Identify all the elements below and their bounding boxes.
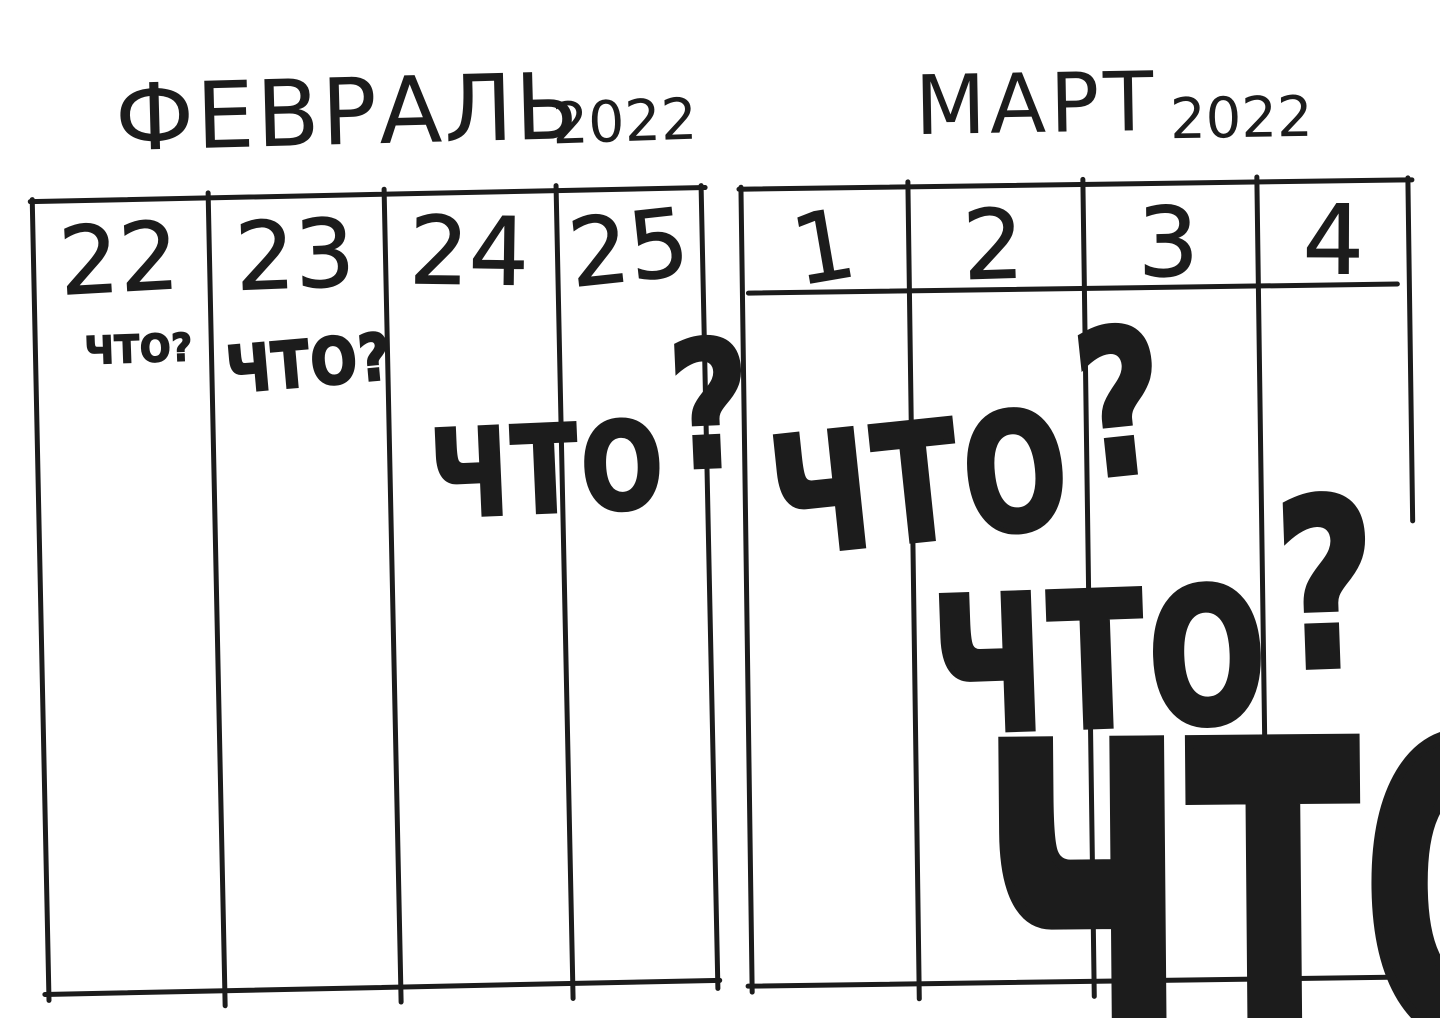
- question-mark: ?: [665, 318, 758, 497]
- what-text: ЧТО?: [84, 325, 194, 373]
- what-text: ЧТО: [982, 660, 1440, 1018]
- day-header-mar-3: 3: [1137, 194, 1199, 291]
- march-table-right-border: [1405, 175, 1415, 523]
- day-header-feb-23: 23: [233, 207, 356, 306]
- day-header-mar-4: 4: [1303, 192, 1364, 288]
- february-table: 22 23 24 25: [30, 185, 721, 997]
- what-annotation-feb-24-25: ЧТО?: [426, 356, 759, 545]
- march-column-divider: [905, 179, 921, 1001]
- day-header-feb-22: 22: [57, 210, 182, 311]
- what-annotation-mar-giant-clipped: ЧТО: [982, 693, 1440, 1018]
- day-header-mar-2: 2: [961, 196, 1025, 294]
- february-table-bottom-border: [42, 978, 722, 997]
- march-year-label: 2022: [1170, 90, 1313, 148]
- february-month-title: ФЕВРАЛЬ: [114, 61, 581, 165]
- what-annotation-feb-22: ЧТО?: [84, 328, 194, 370]
- february-column-divider: [206, 190, 228, 1008]
- what-annotation-feb-23: ЧТО?: [224, 326, 394, 404]
- what-text: ЧТО: [428, 397, 670, 546]
- day-header-feb-25: 25: [564, 196, 693, 302]
- day-header-mar-1: 1: [785, 195, 862, 300]
- february-column-divider: [553, 183, 575, 1001]
- calendar-meme-illustration: ФЕВРАЛЬ 2022 22 23 24 25 МАРТ 2022 1 2 3…: [0, 0, 1440, 1018]
- february-column-divider: [382, 187, 404, 1005]
- february-year-label: 2022: [551, 91, 698, 153]
- day-header-feb-24: 24: [408, 205, 529, 301]
- what-text: ЧТО?: [224, 321, 395, 409]
- february-table-left-border: [30, 197, 52, 1003]
- march-month-title: МАРТ: [914, 62, 1158, 148]
